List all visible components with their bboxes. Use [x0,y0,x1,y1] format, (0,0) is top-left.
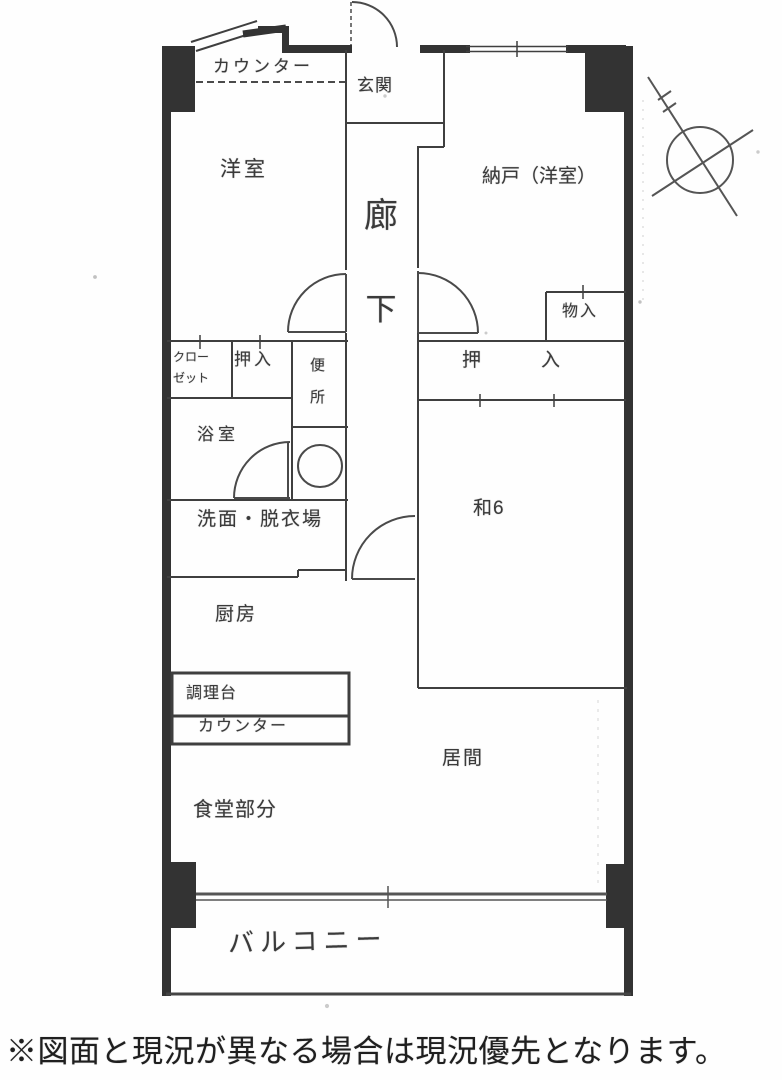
label-corridor-char1: 廊 [364,198,398,235]
window-top [466,41,568,57]
label-storage-small: 物入 [562,303,598,321]
pillar-bottom-right [606,864,633,928]
corridor-south-door-arc [352,516,415,579]
label-storage-western-room: 納戸（洋室） [482,167,596,188]
label-toilet-char2: 所 [310,382,325,414]
label-corridor: 廊 下 [364,198,398,327]
toilet-bowl-icon [298,445,342,487]
label-toilet: 便 所 [310,350,325,413]
pillar-bottom-left [162,862,196,928]
label-cooking-counter: 調理台 [186,685,237,703]
label-oshiire-hall: 押入 [234,351,274,370]
label-western-room: 洋室 [220,158,268,181]
entrance-door-arc [351,2,397,47]
footer-disclaimer: ※図面と現況が異なる場合は現況優先となります。 [6,1026,726,1071]
wall-top-a [284,45,352,53]
label-closet-line2: ゼット [173,368,209,389]
label-closet: クロー ゼット [173,347,209,389]
floorplan-page: カウンター 玄関 洋室 納戸（洋室） 廊 下 物入 クロー ゼット 押入 便 所… [0,0,782,1080]
window-bottom [196,886,607,908]
wall-right [624,46,633,996]
angled-wall-thick [243,28,286,34]
floorplan-drawing [0,0,782,1080]
label-corridor-char2: 下 [366,293,397,327]
label-kitchen: 厨房 [215,605,257,626]
bathroom-door-arc [234,442,290,498]
label-counter-top: カウンター [213,58,313,77]
pillar-top-left [162,46,195,112]
wall-top-c [566,45,626,53]
label-balcony: バルコニー [228,925,388,958]
label-japanese-room: 和6 [473,499,505,520]
label-living-room: 居間 [442,749,484,770]
label-dining-area: 食堂部分 [193,799,277,821]
angled-wall [191,21,286,51]
north-arrow-icon [648,77,753,216]
label-entrance: 玄関 [357,77,393,96]
label-oshiire-washitsu: 押入 [462,351,620,372]
label-closet-line1: クロー [173,347,209,368]
label-washroom: 洗面・脱衣場 [197,510,323,531]
nando-door-arc [418,271,478,333]
label-toilet-char1: 便 [310,350,325,382]
door-arcs [234,2,478,579]
pillar-top-right [585,46,633,112]
wall-left [162,46,171,996]
western-room-door-arc [288,274,346,332]
label-bathroom: 浴室 [197,426,239,445]
label-counter-kitchen: カウンター [198,718,288,736]
